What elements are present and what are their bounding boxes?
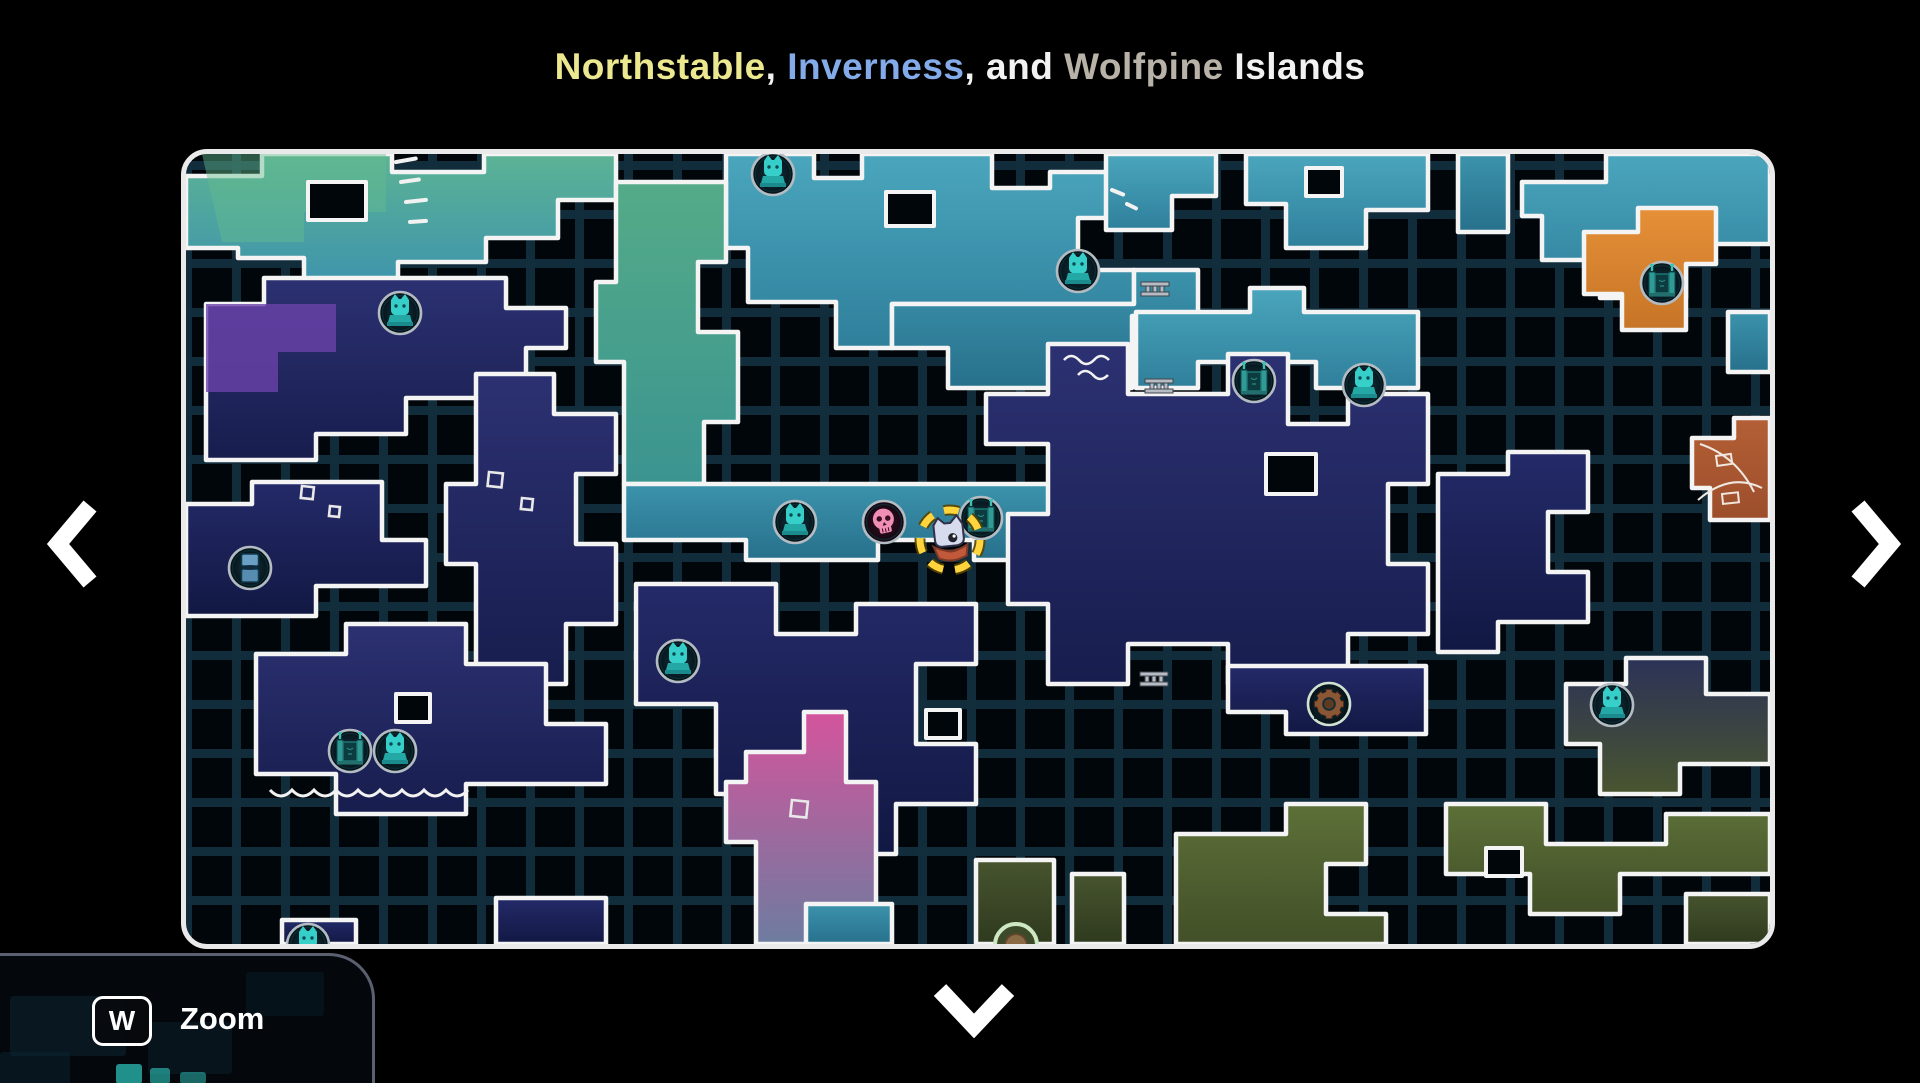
map-region-far-right-small (1728, 312, 1770, 372)
gate-icon (960, 497, 1002, 539)
chevron-right-icon[interactable] (1844, 498, 1906, 590)
map-hole (1306, 168, 1342, 196)
chevron-left-icon[interactable] (42, 498, 104, 590)
title-segment: Wolfpine (1064, 46, 1224, 87)
gate-icon (1233, 360, 1275, 402)
map-region-top-right-a (1106, 154, 1216, 230)
preview-room (180, 1072, 206, 1083)
map-hole (308, 182, 366, 220)
title-segment: Islands (1224, 46, 1366, 87)
map-hole (1486, 848, 1522, 876)
statue-icon (774, 501, 816, 543)
statue-icon (1591, 684, 1633, 726)
map-hole (1266, 454, 1316, 494)
map-region-bottom-right-ridge (1566, 658, 1770, 794)
map-region-left-mid-navy (186, 482, 426, 616)
map-region-rust-grove (1692, 418, 1770, 520)
map-hole (396, 694, 430, 722)
preview-room (0, 1052, 70, 1083)
preview-room (150, 1068, 170, 1083)
chevron-down-icon[interactable] (928, 982, 1020, 1038)
bridge-icon (1140, 672, 1168, 686)
skull-icon (863, 501, 905, 543)
zoom-hotkey-panel: W Zoom (0, 953, 375, 1083)
hotkey-label: Zoom (180, 1001, 264, 1037)
statue-icon (657, 640, 699, 682)
preview-room (116, 1064, 142, 1083)
statue-icon (379, 292, 421, 334)
hotkey-w-badge[interactable]: W (92, 996, 152, 1046)
gate-icon (1641, 262, 1683, 304)
map-region-right-navy (1438, 452, 1588, 652)
map-region-olive-strip (1686, 894, 1770, 944)
title-segment: Northstable (555, 46, 766, 87)
map-hole (926, 710, 960, 738)
statue-icon (1057, 250, 1099, 292)
decoration-dash (410, 221, 426, 222)
map-hole (886, 192, 934, 226)
map-title: Northstable, Inverness, and Wolfpine Isl… (0, 46, 1920, 88)
gate-icon (329, 730, 371, 772)
statue-icon (752, 154, 794, 195)
decoration-dash (396, 159, 416, 162)
pillar-icon (229, 547, 271, 589)
map-region-top-right-c (1458, 154, 1508, 232)
map-region-bottom-navy-clip (496, 898, 606, 944)
decoration-dash (406, 200, 426, 202)
title-segment: , (766, 46, 788, 87)
map-region-bottom-center-teal (806, 904, 892, 944)
map-region-center-left-tower (446, 374, 616, 684)
statue-icon (1343, 364, 1385, 406)
world-map-panel (181, 149, 1775, 949)
map-region-bottom-center-olive-b (1072, 874, 1124, 944)
title-segment: Inverness (787, 46, 964, 87)
statue-icon (374, 730, 416, 772)
gear-icon (1308, 683, 1350, 725)
world-map (186, 154, 1770, 944)
decoration-dash (401, 179, 419, 182)
title-segment: , and (965, 46, 1065, 87)
map-region-olive-maze-a (1176, 804, 1386, 944)
